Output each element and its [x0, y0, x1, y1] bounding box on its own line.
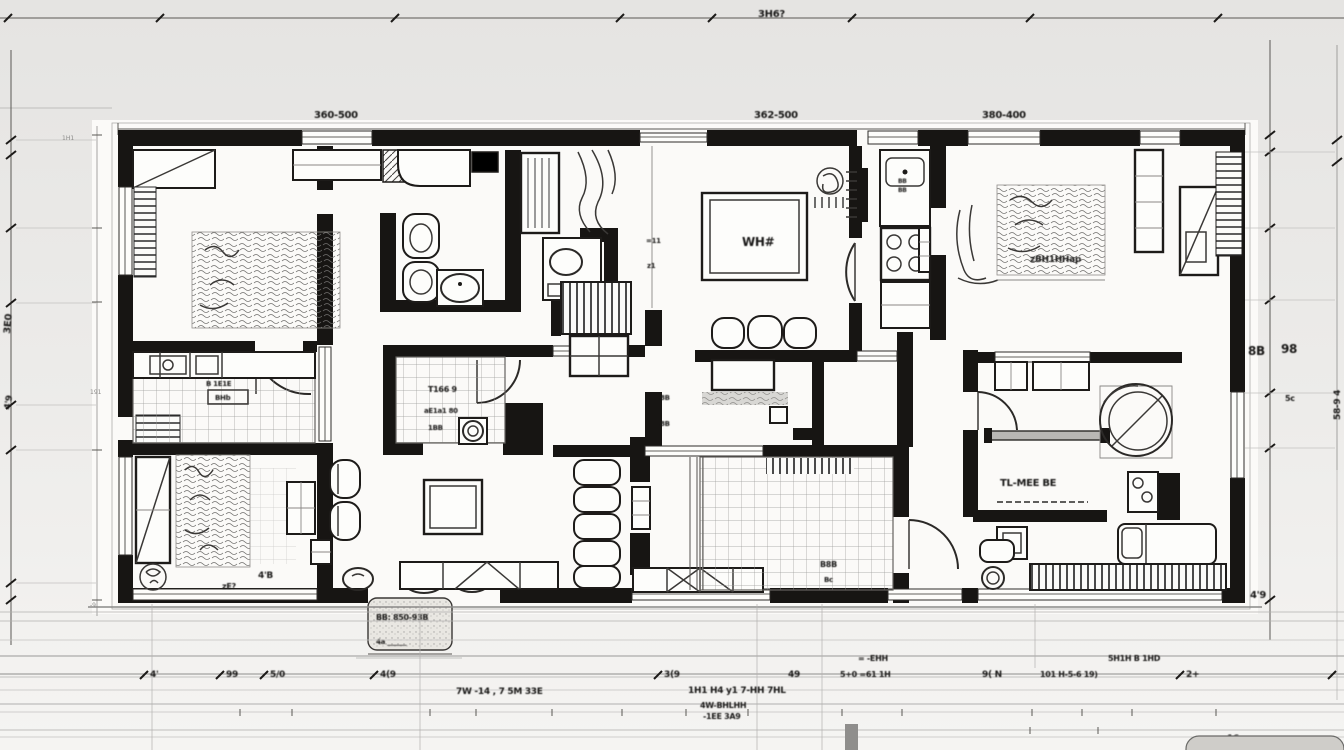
porch-line2: 4a ______ [376, 638, 407, 646]
bottom-dim-7: 9( N [982, 670, 1002, 680]
hall-glyph-a: 8B [660, 394, 670, 402]
gray-marker-block [845, 724, 858, 750]
bottom-dim-6: 5+0 =61 1H [840, 670, 891, 679]
bottom-note-3: -1EE 3A9 [703, 712, 741, 721]
hall-glyph-b: 8B [660, 420, 670, 428]
top-ruler-label: 3H6? [758, 9, 785, 20]
corner-blob [1186, 736, 1344, 750]
lounge-table-glyph: WH# [742, 235, 775, 249]
room-terrace: B8B Bc [690, 457, 893, 590]
kitchen-strip: BB BB [880, 150, 930, 328]
right-ruler-low: 4'9 [1250, 590, 1266, 601]
terrace-glyph-a: B8B [820, 560, 837, 569]
bottom-note-0: 7W -14 , 7 5M 33E [456, 687, 543, 697]
kitchen-left-label-b: BHb [215, 394, 231, 402]
corridor-glyph-a: =11 [646, 237, 661, 245]
kitchen-tiny-b: BB [898, 187, 907, 194]
left-ruler-label-a: 3E0 [2, 313, 15, 334]
terrace-glyph-b: Bc [824, 576, 833, 584]
bottom-small-b: 5H1H B 1HD [1108, 654, 1161, 663]
bottom-dim-2: 5/0 [270, 670, 285, 680]
corridor-glyph-b: z1 [647, 262, 656, 270]
bottom-note-1: 1H1 H4 y1 7-HH 7HL [688, 686, 786, 696]
bottom-small-a: = -EHH [858, 654, 888, 663]
plan-width-label-1: 360-500 [314, 110, 358, 121]
right-ruler-pair-b: 98 [1281, 342, 1297, 356]
right-ruler-small: 5c [1285, 394, 1295, 403]
right-ruler-pair-a: 8B [1248, 344, 1265, 358]
kitchen-mid-line2: aE1a1 80 [424, 407, 458, 415]
bedroom-bl-label-b: zE? [222, 582, 237, 591]
right-ruler-far: 58-9 4 [1333, 390, 1343, 420]
left-ruler-tiny-a: 1H1 [62, 135, 74, 142]
bedroom-tr-rug-label: zBH1HHap [1030, 255, 1082, 265]
bottom-dim-5: 49 [788, 670, 800, 680]
bottom-dim-8: 101 H-5-6 19) [1040, 670, 1098, 679]
bottom-note-2: 4W-BHLHH [700, 701, 746, 710]
bottom-dim-9: 2+ [1186, 670, 1199, 680]
left-ruler-tiny-b: 191 [90, 389, 102, 396]
bottom-dim-0: 4' [150, 670, 158, 680]
room-kitchen-mid: T166 9 aE1a1 80 1BB [396, 357, 505, 444]
rug-bedroom-bl [176, 455, 250, 567]
bedroom-bl-label-a: 4'B [258, 571, 273, 581]
floor-plan-blueprint: 3H6? 360-500 362-500 380-400 3E0 4'9 1H1… [0, 0, 1344, 750]
kitchen-left-label-a: B 1E1E [206, 380, 232, 388]
kitchen-tiny-a: BB [898, 178, 907, 185]
kitchen-mid-line3: 1BB [428, 424, 443, 432]
plan-width-label-3: 380-400 [982, 110, 1026, 121]
bottom-dim-1: 99 [226, 670, 238, 680]
bottom-dim-4: 3(9 [664, 670, 680, 680]
bottom-dim-3: 4(9 [380, 670, 396, 680]
room-kitchen-left: B 1E1E BHb [133, 352, 315, 443]
left-ruler-tiny-c: -9 [90, 602, 96, 609]
bedroom-mr-label: TL-MEE BE [1000, 478, 1057, 489]
kitchen-mid-line1: T166 9 [428, 385, 457, 394]
plan-width-label-2: 362-500 [754, 110, 798, 121]
